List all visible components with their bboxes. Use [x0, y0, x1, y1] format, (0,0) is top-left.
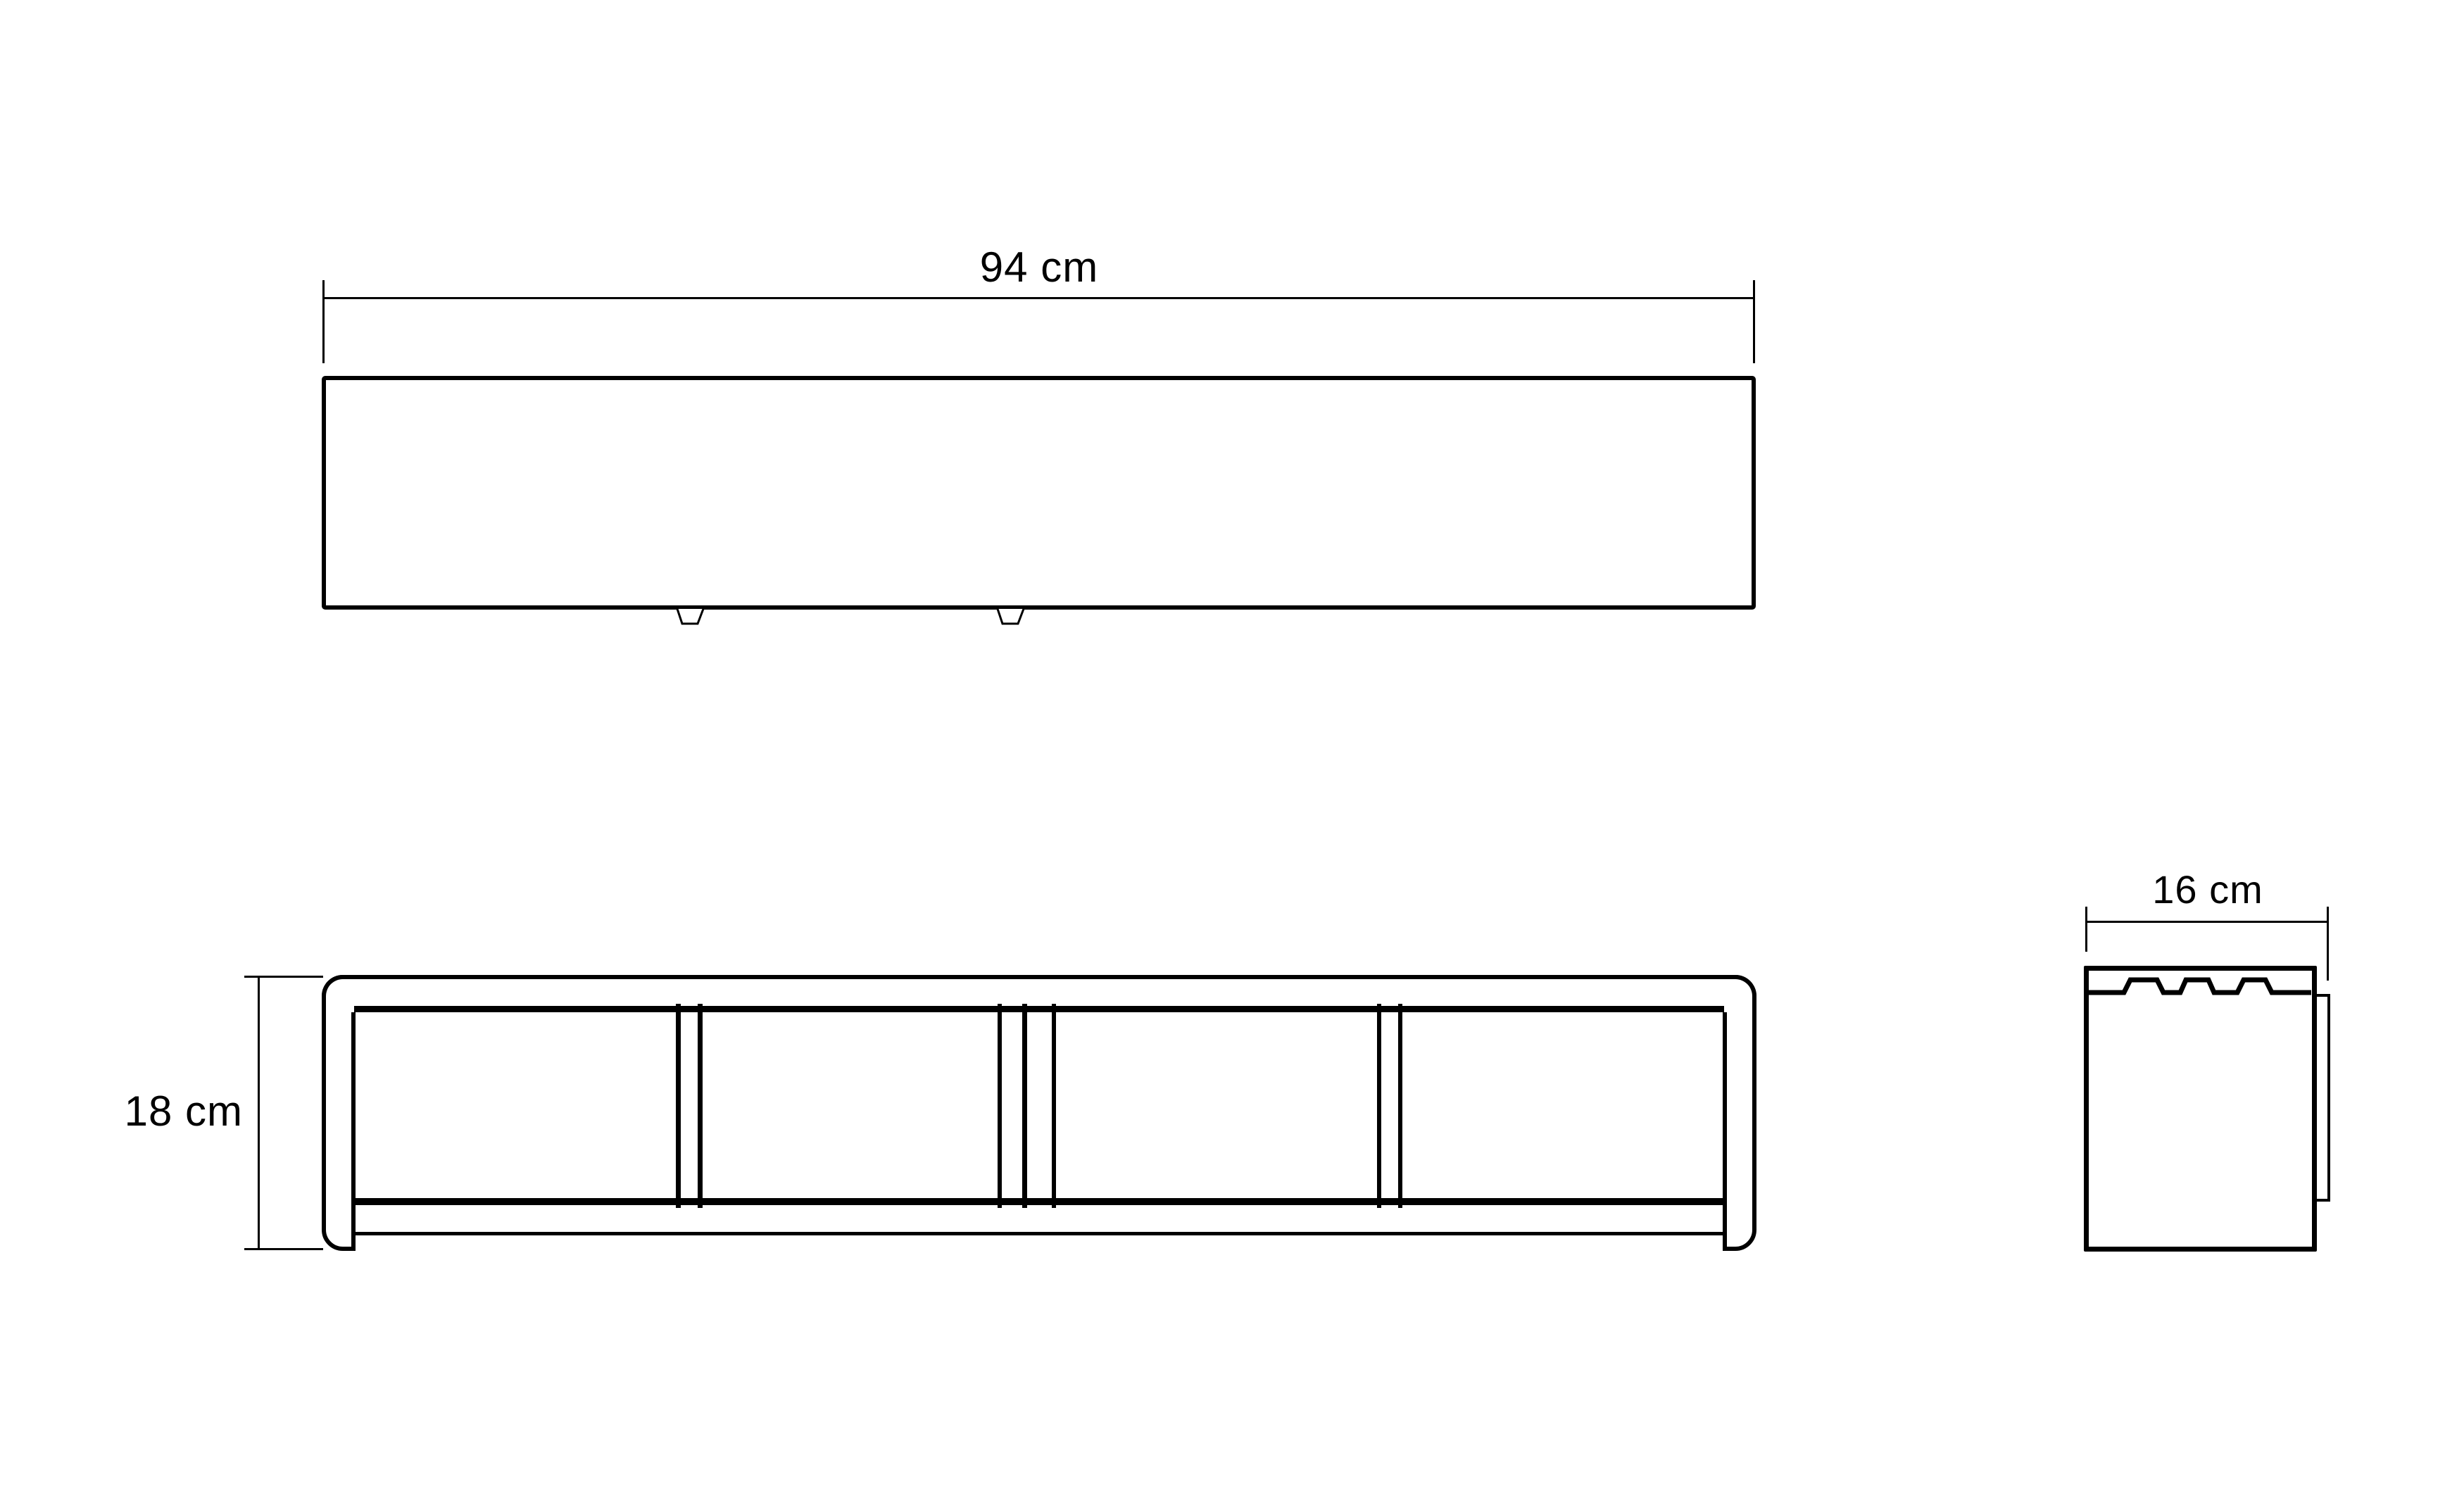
height-dimension-tick-top [244, 976, 323, 978]
height-dimension-line [258, 977, 260, 1250]
depth-dimension-tick-left [2085, 907, 2087, 952]
front-left-side-panel [322, 975, 356, 1251]
front-base-line [354, 1232, 1724, 1235]
width-dimension-line [323, 297, 1755, 299]
side-view-outline [2084, 966, 2317, 1252]
divider-2-middle-edge [1022, 1004, 1027, 1208]
top-view-foot-tab [676, 608, 705, 626]
width-dimension-tick-left [322, 280, 325, 363]
height-dimension-tick-bottom [244, 1248, 323, 1250]
divider-2-right-edge [1052, 1004, 1056, 1208]
depth-dimension-tick-right [2327, 907, 2329, 981]
front-shelf-line [354, 1198, 1724, 1205]
divider-1-left-edge [676, 1004, 681, 1208]
top-view-outline [322, 376, 1756, 610]
height-dimension-label: 18 cm [18, 1090, 243, 1133]
width-dimension-label: 94 cm [912, 246, 1166, 289]
depth-dimension-line [2086, 921, 2329, 923]
divider-1-right-edge [698, 1004, 703, 1208]
width-dimension-tick-right [1753, 280, 1755, 363]
divider-3-right-edge [1398, 1004, 1402, 1208]
front-tabletop-underside-line [354, 1006, 1724, 1012]
top-view-foot-tab [996, 608, 1025, 626]
furniture-technical-drawing: 94 cm 18 cm [0, 0, 2464, 1505]
side-finger-joint-line [2089, 975, 2311, 999]
side-back-rail [2317, 994, 2330, 1202]
front-right-side-panel [1723, 975, 1756, 1251]
divider-3-left-edge [1377, 1004, 1381, 1208]
divider-2-left-edge [998, 1004, 1002, 1208]
depth-dimension-label: 16 cm [2095, 870, 2320, 909]
